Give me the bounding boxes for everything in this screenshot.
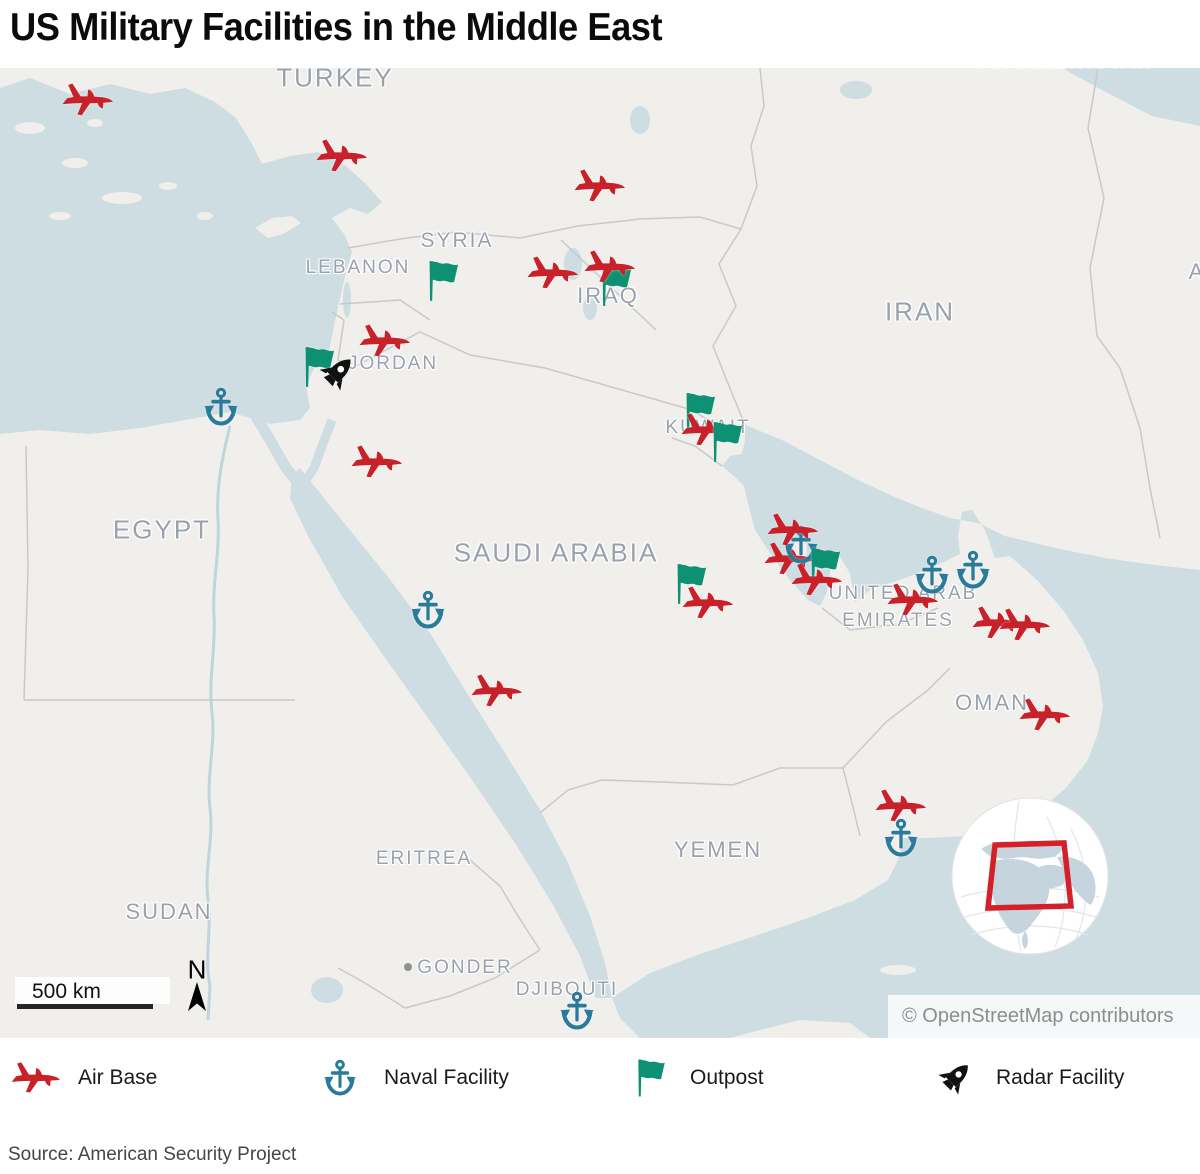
facility-marker-air-base (1018, 694, 1072, 737)
country-label: SYRIA (420, 229, 493, 253)
footer: Air BaseNaval FacilityOutpostRadar Facil… (0, 1038, 1200, 1174)
facility-marker-naval-facility (410, 591, 446, 630)
country-label: YEMEN (674, 837, 762, 863)
facility-marker-air-base (350, 441, 404, 484)
radar-facility-icon (936, 1059, 974, 1097)
facility-marker-air-base (583, 246, 637, 289)
facility-marker-air-base (790, 559, 844, 602)
infographic-page: US Military Facilities in the Middle Eas… (0, 0, 1200, 1174)
air-base-icon (10, 1058, 62, 1099)
facility-marker-air-base (470, 670, 524, 713)
country-label: A (1189, 259, 1200, 285)
country-label: ERITREA (376, 848, 472, 870)
legend-label: Radar Facility (996, 1066, 1124, 1090)
facility-marker-naval-facility (203, 388, 239, 427)
facility-marker-air-base (358, 320, 412, 363)
facility-marker-air-base (573, 165, 627, 208)
country-label: EGYPT (113, 515, 211, 546)
legend-label: Naval Facility (384, 1066, 509, 1090)
scale-bar-label: 500 km (32, 980, 101, 1004)
outpost-icon (630, 1057, 667, 1100)
source-text: Source: American Security Project (8, 1144, 296, 1166)
facility-marker-air-base (998, 604, 1052, 647)
facility-marker-air-base (61, 79, 115, 122)
page-title: US Military Facilities in the Middle Eas… (10, 6, 662, 50)
country-label: IRAN (885, 297, 955, 328)
country-label: SAUDI ARABIA (454, 538, 659, 569)
country-label: TURKEY (276, 68, 393, 94)
country-label: GONDER (417, 957, 512, 979)
north-arrow-icon (185, 980, 209, 1014)
scale-bar-line (17, 1004, 153, 1009)
city-dot (404, 963, 412, 971)
facility-marker-air-base (886, 579, 940, 622)
facility-marker-naval-facility (559, 992, 595, 1031)
naval-facility-icon (323, 1060, 357, 1097)
globe-inset (951, 797, 1109, 955)
map-canvas: TURKEYTURKMENISTANSYRIALEBANONIRAQIRANJO… (0, 68, 1200, 1038)
facility-marker-naval-facility (883, 819, 919, 858)
legend-label: Air Base (78, 1066, 157, 1090)
facility-marker-naval-facility (955, 551, 991, 590)
country-label: TURKMENISTAN (973, 68, 1153, 74)
facility-marker-air-base (681, 582, 735, 625)
facility-marker-outpost (420, 258, 460, 304)
map-attribution: © OpenStreetMap contributors (888, 995, 1200, 1038)
header: US Military Facilities in the Middle Eas… (0, 0, 1200, 68)
facility-marker-air-base (526, 252, 580, 295)
attribution-text: © OpenStreetMap contributors (902, 1005, 1174, 1028)
legend-label: Outpost (690, 1066, 764, 1090)
facility-marker-radar-facility (317, 353, 357, 393)
facility-marker-air-base (315, 135, 369, 178)
country-label: SUDAN (125, 899, 212, 925)
facility-marker-outpost (704, 419, 744, 465)
country-label: LEBANON (306, 257, 411, 279)
